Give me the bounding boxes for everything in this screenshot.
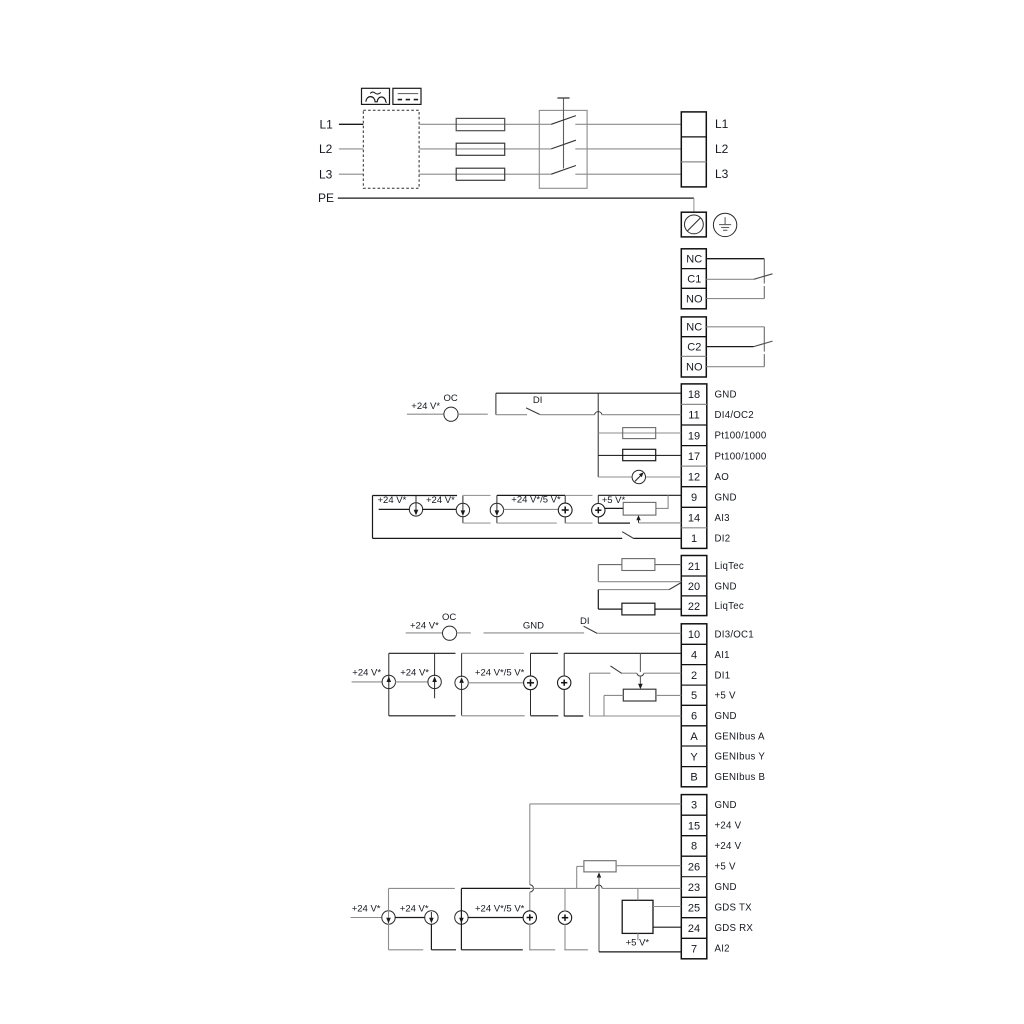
svg-text:L3: L3 [715, 167, 729, 181]
svg-text:23: 23 [688, 882, 700, 894]
svg-text:+24 V*: +24 V* [378, 495, 407, 506]
svg-text:GND: GND [715, 581, 737, 592]
svg-text:25: 25 [688, 902, 700, 914]
svg-text:AO: AO [715, 472, 730, 483]
svg-text:C2: C2 [687, 342, 701, 354]
svg-text:LiqTec: LiqTec [715, 601, 745, 612]
svg-text:NO: NO [686, 362, 703, 374]
svg-text:B: B [690, 772, 697, 784]
svg-text:L2: L2 [319, 142, 333, 156]
svg-text:11: 11 [688, 410, 699, 422]
svg-text:GND: GND [715, 390, 737, 401]
svg-text:26: 26 [688, 861, 700, 873]
svg-text:+24 V*: +24 V* [400, 904, 429, 915]
svg-text:+24 V*: +24 V* [410, 621, 439, 632]
svg-text:+24 V: +24 V [715, 821, 742, 832]
svg-text:15: 15 [688, 820, 700, 832]
svg-text:GND: GND [523, 621, 544, 632]
svg-text:DI: DI [533, 395, 543, 406]
svg-text:L2: L2 [715, 142, 729, 156]
svg-text:GND: GND [715, 882, 737, 893]
svg-text:7: 7 [691, 943, 697, 955]
svg-text:+24 V*/5 V*: +24 V*/5 V* [475, 668, 525, 679]
svg-text:19: 19 [688, 430, 700, 442]
svg-text:+24 V*: +24 V* [411, 401, 440, 412]
svg-text:Pt100/1000: Pt100/1000 [715, 431, 767, 442]
svg-text:OC: OC [444, 393, 458, 404]
svg-text:GDS RX: GDS RX [715, 923, 754, 934]
svg-text:+24 V*/5 V*: +24 V*/5 V* [511, 495, 561, 506]
svg-text:+5 V: +5 V [715, 862, 736, 873]
svg-text:2: 2 [691, 670, 697, 682]
svg-text:+24 V: +24 V [715, 841, 742, 852]
svg-text:+24 V*: +24 V* [352, 668, 381, 679]
svg-text:DI3/OC1: DI3/OC1 [715, 629, 754, 640]
svg-text:17: 17 [688, 451, 700, 463]
svg-text:14: 14 [688, 513, 700, 525]
svg-text:+24 V*: +24 V* [426, 495, 455, 506]
svg-text:AI1: AI1 [715, 650, 730, 661]
svg-text:10: 10 [688, 629, 700, 641]
svg-text:GND: GND [715, 492, 737, 503]
svg-text:22: 22 [688, 601, 700, 613]
svg-text:20: 20 [688, 581, 700, 593]
svg-text:GND: GND [715, 800, 737, 811]
svg-text:C1: C1 [687, 273, 701, 285]
svg-text:5: 5 [691, 690, 697, 702]
svg-text:AI2: AI2 [715, 944, 730, 955]
svg-text:+24 V*: +24 V* [352, 904, 381, 915]
svg-text:OC: OC [442, 612, 456, 623]
svg-text:24: 24 [688, 923, 700, 935]
svg-text:L1: L1 [715, 117, 729, 131]
svg-text:21: 21 [688, 561, 700, 573]
svg-text:GENIbus B: GENIbus B [715, 772, 766, 783]
svg-text:12: 12 [688, 471, 700, 483]
svg-text:4: 4 [691, 650, 697, 662]
svg-text:+5 V*: +5 V* [626, 938, 650, 949]
svg-text:Pt100/1000: Pt100/1000 [715, 451, 767, 462]
svg-text:1: 1 [691, 533, 697, 545]
svg-text:DI2: DI2 [715, 534, 731, 545]
svg-text:+5 V*: +5 V* [602, 495, 626, 506]
svg-text:NC: NC [686, 322, 702, 334]
svg-text:8: 8 [691, 841, 697, 853]
svg-text:6: 6 [691, 711, 697, 723]
svg-text:DI1: DI1 [715, 671, 731, 682]
svg-text:LiqTec: LiqTec [715, 561, 745, 572]
svg-text:+24 V*: +24 V* [400, 668, 429, 679]
svg-text:GND: GND [715, 711, 737, 722]
svg-text:DI4/OC2: DI4/OC2 [715, 410, 754, 421]
svg-text:+24 V*/5 V*: +24 V*/5 V* [475, 904, 525, 915]
svg-text:18: 18 [688, 389, 700, 401]
svg-text:GENIbus Y: GENIbus Y [715, 752, 766, 763]
svg-text:L3: L3 [319, 167, 333, 181]
svg-text:AI3: AI3 [715, 513, 730, 524]
svg-text:PE: PE [318, 191, 334, 205]
svg-text:GDS TX: GDS TX [715, 903, 753, 914]
svg-text:A: A [690, 731, 698, 743]
svg-text:GENIbus A: GENIbus A [715, 731, 765, 742]
svg-text:NC: NC [686, 254, 702, 266]
svg-text:L1: L1 [320, 117, 334, 131]
svg-text:+5 V: +5 V [715, 691, 736, 702]
svg-text:3: 3 [691, 800, 697, 812]
svg-text:DI: DI [580, 616, 590, 627]
svg-text:9: 9 [691, 492, 697, 504]
svg-text:NO: NO [686, 294, 703, 306]
svg-text:Y: Y [690, 751, 698, 763]
